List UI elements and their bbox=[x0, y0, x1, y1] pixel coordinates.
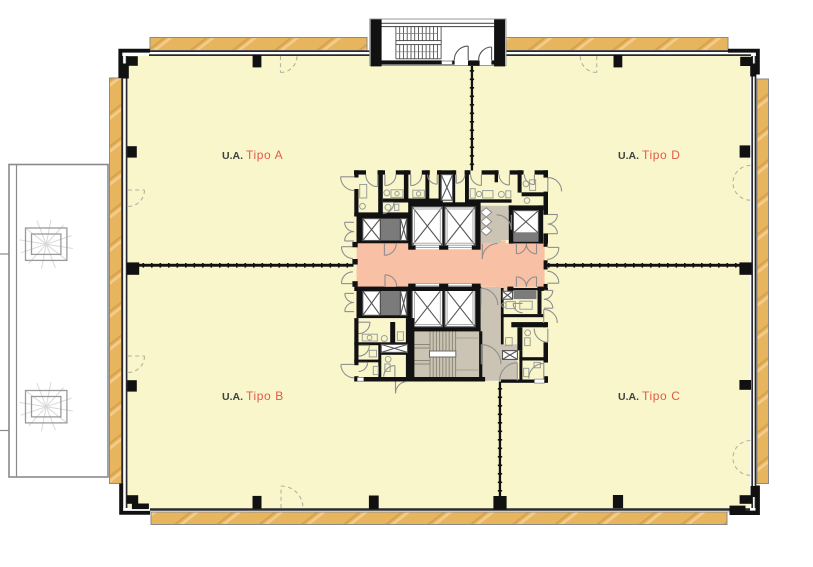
svg-text:U.A.: U.A. bbox=[222, 150, 243, 162]
svg-text:U.A.: U.A. bbox=[618, 150, 639, 162]
svg-text:Tipo D: Tipo D bbox=[642, 148, 681, 162]
svg-text:Tipo C: Tipo C bbox=[642, 389, 681, 403]
svg-text:Tipo A: Tipo A bbox=[246, 148, 283, 162]
svg-text:U.A.: U.A. bbox=[222, 391, 243, 403]
svg-text:Tipo B: Tipo B bbox=[246, 389, 284, 403]
svg-text:U.A.: U.A. bbox=[618, 391, 639, 403]
